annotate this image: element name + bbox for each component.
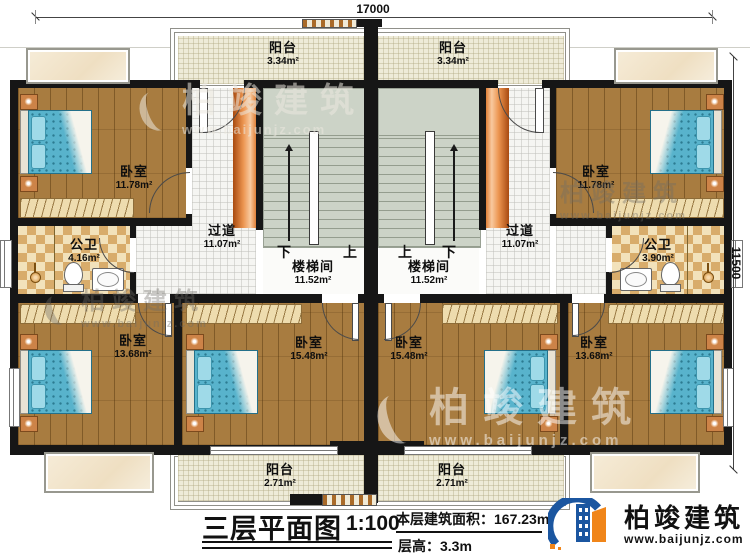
nightstand-icon (20, 334, 38, 350)
staircase-right (378, 88, 481, 248)
bed-headboard (713, 110, 722, 174)
brand-block: 柏竣建筑 www.baijunjz.com (548, 498, 744, 552)
pillow-icon (530, 384, 545, 409)
room-label-hallway-left: 过道11.07m² (204, 224, 241, 250)
wall (550, 218, 732, 226)
bed-icon (186, 350, 258, 414)
title-underline (202, 541, 392, 549)
stair-up-arrow (453, 147, 455, 241)
wall (606, 272, 612, 303)
nightstand-icon (20, 94, 38, 110)
wall (560, 303, 568, 455)
shower-partition (54, 226, 55, 294)
shower-icon (703, 272, 714, 283)
bay-window (614, 48, 718, 84)
stair-rail (309, 131, 319, 245)
nightstand-icon (706, 334, 724, 350)
floor-area-stat: 本层建筑面积：167.23m² (396, 509, 554, 529)
bay-window (44, 452, 154, 493)
floor-hallway-left-ext (136, 226, 192, 294)
wardrobe (608, 304, 724, 324)
room-label-balcony-top-right: 阳台3.34m² (437, 41, 469, 67)
bed-icon (484, 350, 556, 414)
wall (130, 272, 136, 303)
room-label-balcony-bottom-right: 阳台2.71m² (436, 463, 468, 489)
wall (550, 88, 556, 168)
sliding-window (210, 446, 338, 455)
pillow-icon (530, 356, 545, 381)
room-label-bedroom-bottom-left: 卧室13.68m² (114, 334, 151, 360)
dimension-height: 11500 (729, 247, 743, 280)
wardrobe (20, 304, 136, 324)
stair-down-label: 下 (442, 242, 456, 262)
stair-up-arrow (288, 147, 290, 241)
brand-name: 柏竣建筑 (624, 504, 744, 533)
wall (170, 294, 322, 303)
dimension-extension (712, 10, 713, 24)
bed-icon (650, 350, 722, 414)
wall (479, 88, 486, 230)
room-label-stairwell-left: 楼梯间11.52m² (292, 260, 334, 286)
room-label-bedroom-bottom-right: 卧室13.68m² (575, 336, 612, 362)
bay-window (590, 452, 700, 493)
room-label-bedroom-upper-right: 卧室11.78m² (578, 165, 615, 191)
floor-balcony-top-right (378, 36, 564, 84)
hatched-wall-segment (302, 19, 357, 28)
shower-icon (30, 272, 41, 283)
room-label-stairwell-right: 楼梯间11.52m² (408, 260, 450, 286)
bed-blanket (651, 351, 685, 413)
room-label-bathroom-left: 公卫4.16m² (68, 238, 100, 264)
dimension-width: 17000 (356, 2, 389, 16)
window (9, 368, 20, 427)
wall (10, 294, 138, 303)
nightstand-icon (20, 416, 38, 432)
wall (606, 226, 612, 238)
wall (604, 294, 732, 303)
pillow-icon (696, 116, 711, 141)
nightstand-icon (20, 176, 38, 192)
stat-divider (396, 531, 542, 533)
party-wall (364, 27, 378, 503)
bed-blanket (57, 351, 91, 413)
floor-height-label: 层高： (398, 538, 440, 554)
stair-rail (425, 131, 435, 245)
bed-blanket (651, 111, 685, 173)
stair-up-label: 上 (343, 242, 357, 262)
nightstand-icon (540, 334, 558, 350)
sink-icon (620, 268, 652, 291)
bed-icon (650, 110, 722, 174)
floor-height-stat: 层高：3.3m (398, 536, 472, 556)
brand-url: www.baijunjz.com (624, 532, 744, 546)
pillow-icon (31, 116, 46, 141)
bed-blanket (485, 351, 519, 413)
room-label-bedroom-upper-left: 卧室11.78m² (116, 165, 153, 191)
nightstand-icon (186, 334, 204, 350)
pillow-icon (696, 384, 711, 409)
sink-icon (92, 268, 124, 291)
dimension-extension (35, 10, 36, 24)
wall-cap (290, 494, 322, 505)
bed-icon (20, 350, 92, 414)
window (0, 240, 12, 288)
floor-height-value: 3.3m (440, 538, 472, 554)
wall (10, 218, 192, 226)
floor-plan: 阳台3.34m² 阳台3.34m² 卧室11.78m² 卧室11.78m² 过道… (0, 0, 750, 557)
wall (130, 226, 136, 238)
pillow-icon (31, 144, 46, 169)
bay-window (26, 48, 130, 84)
floor-area-value: 167.23m² (494, 511, 554, 527)
room-label-hallway-right: 过道11.07m² (502, 224, 539, 250)
room-label-balcony-top-left: 阳台3.34m² (267, 41, 299, 67)
floor-balcony-bottom-right (378, 452, 564, 501)
room-label-balcony-bottom-left: 阳台2.71m² (264, 463, 296, 489)
wall (256, 88, 263, 230)
bed-blanket (57, 111, 91, 173)
bed-headboard (713, 350, 722, 414)
brand-logo-icon (548, 498, 616, 552)
room-label-bathroom-right: 公卫3.90m² (642, 238, 674, 264)
room-label-bedroom-bottom-center-left: 卧室15.48m² (290, 336, 327, 362)
toilet-icon (64, 262, 83, 286)
pillow-icon (197, 384, 212, 409)
nightstand-icon (186, 416, 204, 432)
pillow-icon (31, 384, 46, 409)
wall (186, 214, 192, 226)
wall-cap (357, 19, 382, 27)
wardrobe (186, 304, 302, 324)
stair-down-label: 下 (277, 242, 291, 262)
pillow-icon (197, 356, 212, 381)
room-label-bedroom-bottom-center-right: 卧室15.48m² (390, 336, 427, 362)
stair-up-label: 上 (398, 242, 412, 262)
floor-area-label: 本层建筑面积： (396, 511, 494, 527)
plan-scale: 1:100 (346, 512, 400, 536)
wall (420, 294, 572, 303)
pillow-icon (31, 356, 46, 381)
nightstand-icon (540, 416, 558, 432)
wardrobe (20, 198, 134, 218)
wall (174, 303, 182, 455)
bed-headboard (547, 350, 556, 414)
sliding-window (404, 446, 532, 455)
shower-partition (687, 226, 688, 294)
pillow-icon (696, 356, 711, 381)
wardrobe (442, 304, 558, 324)
bed-blanket (223, 351, 257, 413)
dimension-line-top (35, 17, 712, 18)
wall (550, 214, 556, 226)
nightstand-icon (706, 94, 724, 110)
floor-hallway-right-ext (556, 226, 606, 294)
wall (186, 88, 192, 168)
wardrobe (610, 198, 724, 218)
hatched-wall-segment (322, 494, 377, 506)
nightstand-icon (706, 176, 724, 192)
staircase-left (263, 88, 366, 248)
bed-icon (20, 110, 92, 174)
nightstand-icon (706, 416, 724, 432)
pillow-icon (696, 144, 711, 169)
toilet-icon (661, 262, 680, 286)
